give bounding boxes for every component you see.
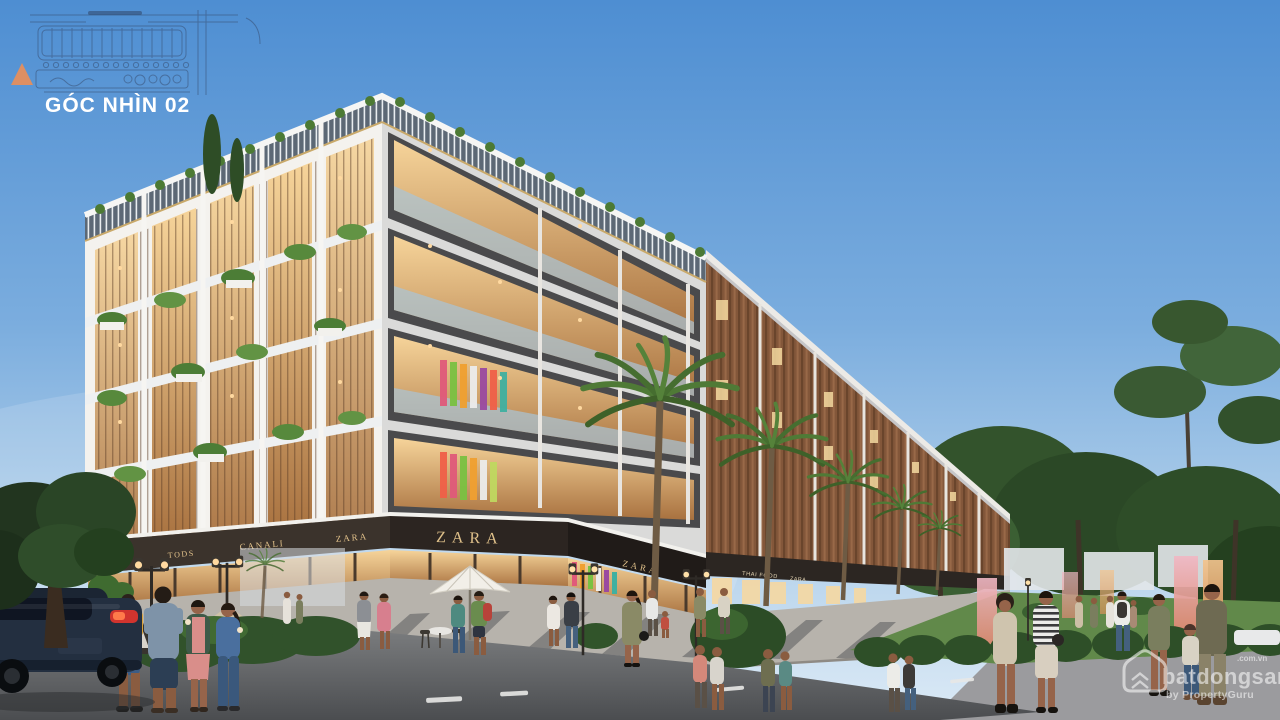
plan-street-label: [88, 11, 142, 15]
shop-sign-zara-corner: ZARA: [436, 529, 504, 548]
watermark-domain: .com.vn: [1237, 654, 1267, 663]
park-bench: [1234, 630, 1280, 645]
watermark-brand: batdongsan: [1162, 664, 1280, 689]
render-viewport: GÓC NHÌN 02: [0, 0, 1280, 720]
view-title: GÓC NHÌN 02: [45, 93, 190, 117]
architectural-render: GÓC NHÌN 02: [0, 0, 1280, 720]
watermark-tagline: by PropertyGuru: [1166, 689, 1254, 701]
